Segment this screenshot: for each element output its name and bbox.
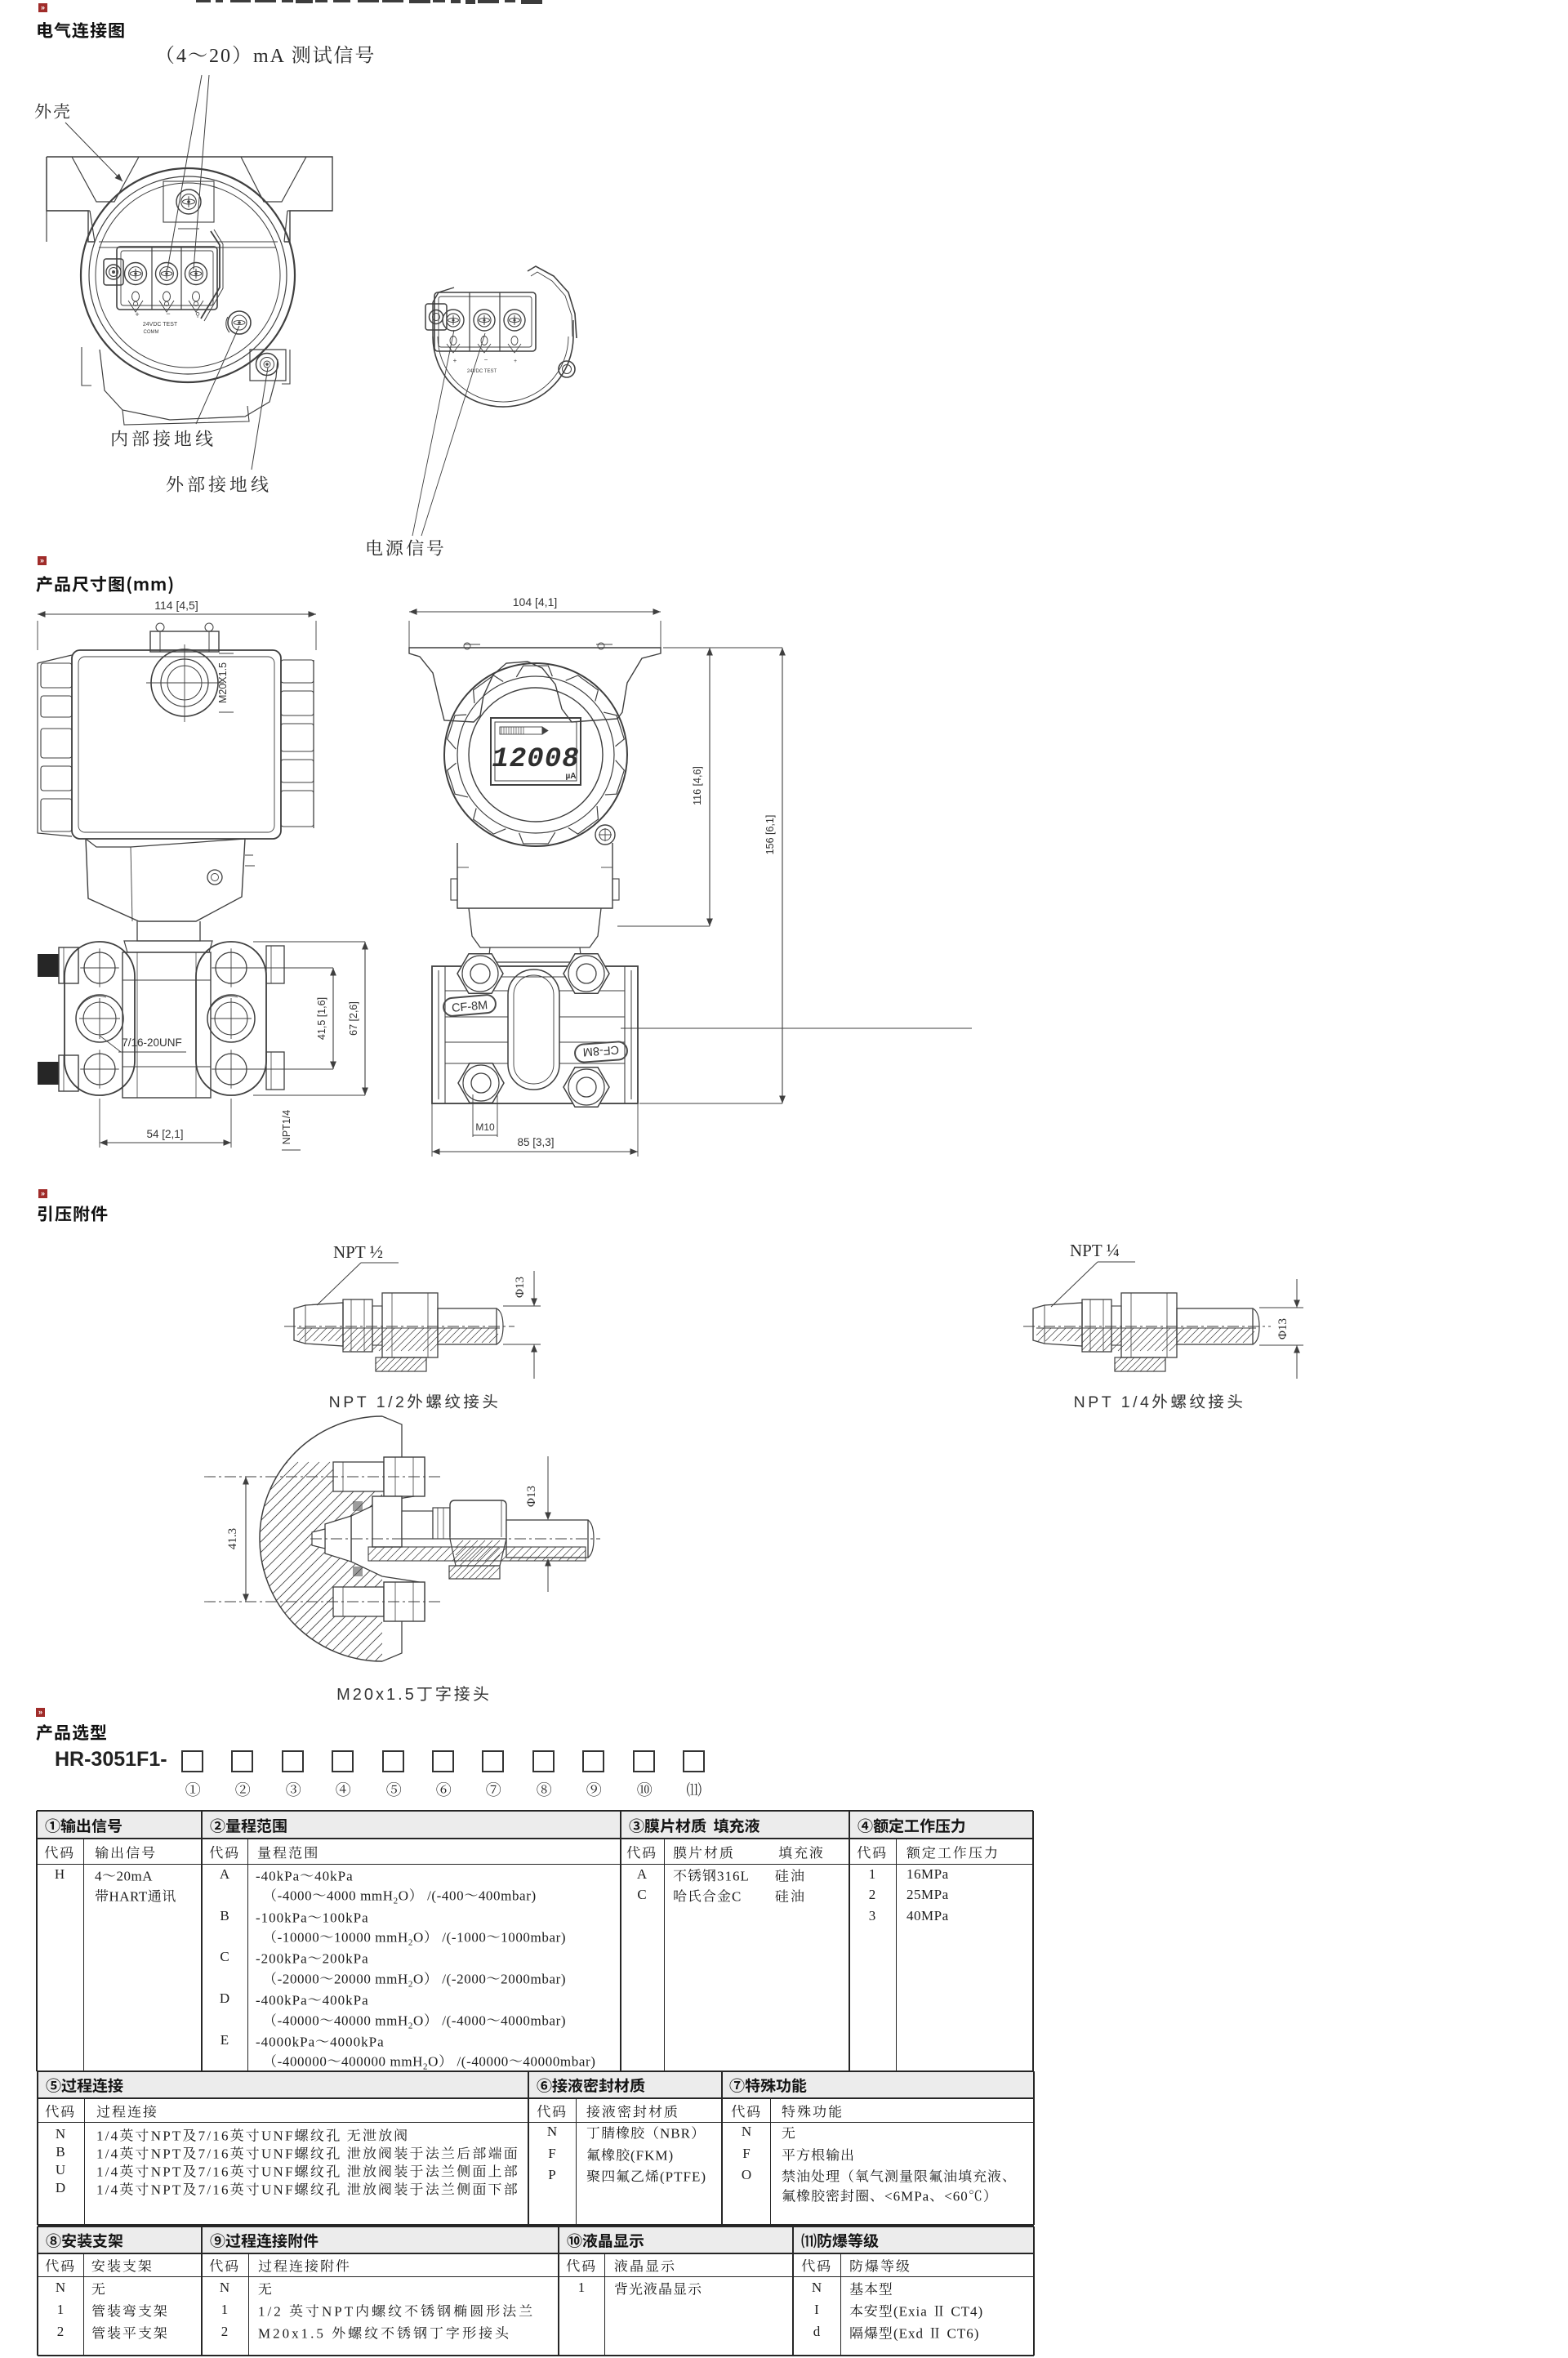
svg-text:156 [6,1]: 156 [6,1] [764, 815, 776, 855]
svg-text:24VDC TEST: 24VDC TEST [467, 369, 497, 374]
svg-text:M10: M10 [475, 1121, 495, 1133]
svg-text:7/16-20UNF: 7/16-20UNF [122, 1036, 182, 1049]
svg-text:67 [2,6]: 67 [2,6] [348, 1001, 359, 1036]
svg-text:CF-8M: CF-8M [582, 1042, 619, 1058]
svg-text:M20X1.5: M20X1.5 [217, 662, 229, 703]
svg-text:NPT1/4: NPT1/4 [281, 1110, 292, 1144]
svg-text:+: + [135, 310, 139, 319]
svg-text:Φ13: Φ13 [525, 1486, 538, 1507]
svg-text:Φ13: Φ13 [514, 1277, 527, 1298]
svg-text:⚲: ⚲ [195, 311, 200, 319]
svg-text:µA: µA [566, 772, 577, 781]
svg-text:104 [4,1]: 104 [4,1] [513, 595, 558, 608]
svg-text:116 [4,6]: 116 [4,6] [692, 766, 703, 805]
svg-text:12008: 12008 [492, 744, 579, 775]
svg-text:+: + [453, 357, 457, 364]
svg-text:Φ13: Φ13 [1276, 1318, 1290, 1339]
svg-text:54 [2,1]: 54 [2,1] [146, 1128, 183, 1140]
svg-text:24VDC TEST: 24VDC TEST [143, 322, 178, 328]
svg-text:−: − [484, 356, 488, 363]
svg-text:COMM: COMM [144, 330, 159, 335]
svg-text:NPT ¼: NPT ¼ [1070, 1240, 1120, 1260]
svg-text:41.3: 41.3 [226, 1528, 239, 1549]
svg-text:114 [4,5]: 114 [4,5] [154, 599, 198, 612]
svg-text:−: − [166, 310, 170, 318]
svg-text:NPT ½: NPT ½ [333, 1241, 383, 1262]
svg-text:+: + [514, 359, 517, 364]
svg-text:85 [3,3]: 85 [3,3] [517, 1136, 554, 1148]
svg-text:41,5 [1,6]: 41,5 [1,6] [316, 997, 327, 1040]
